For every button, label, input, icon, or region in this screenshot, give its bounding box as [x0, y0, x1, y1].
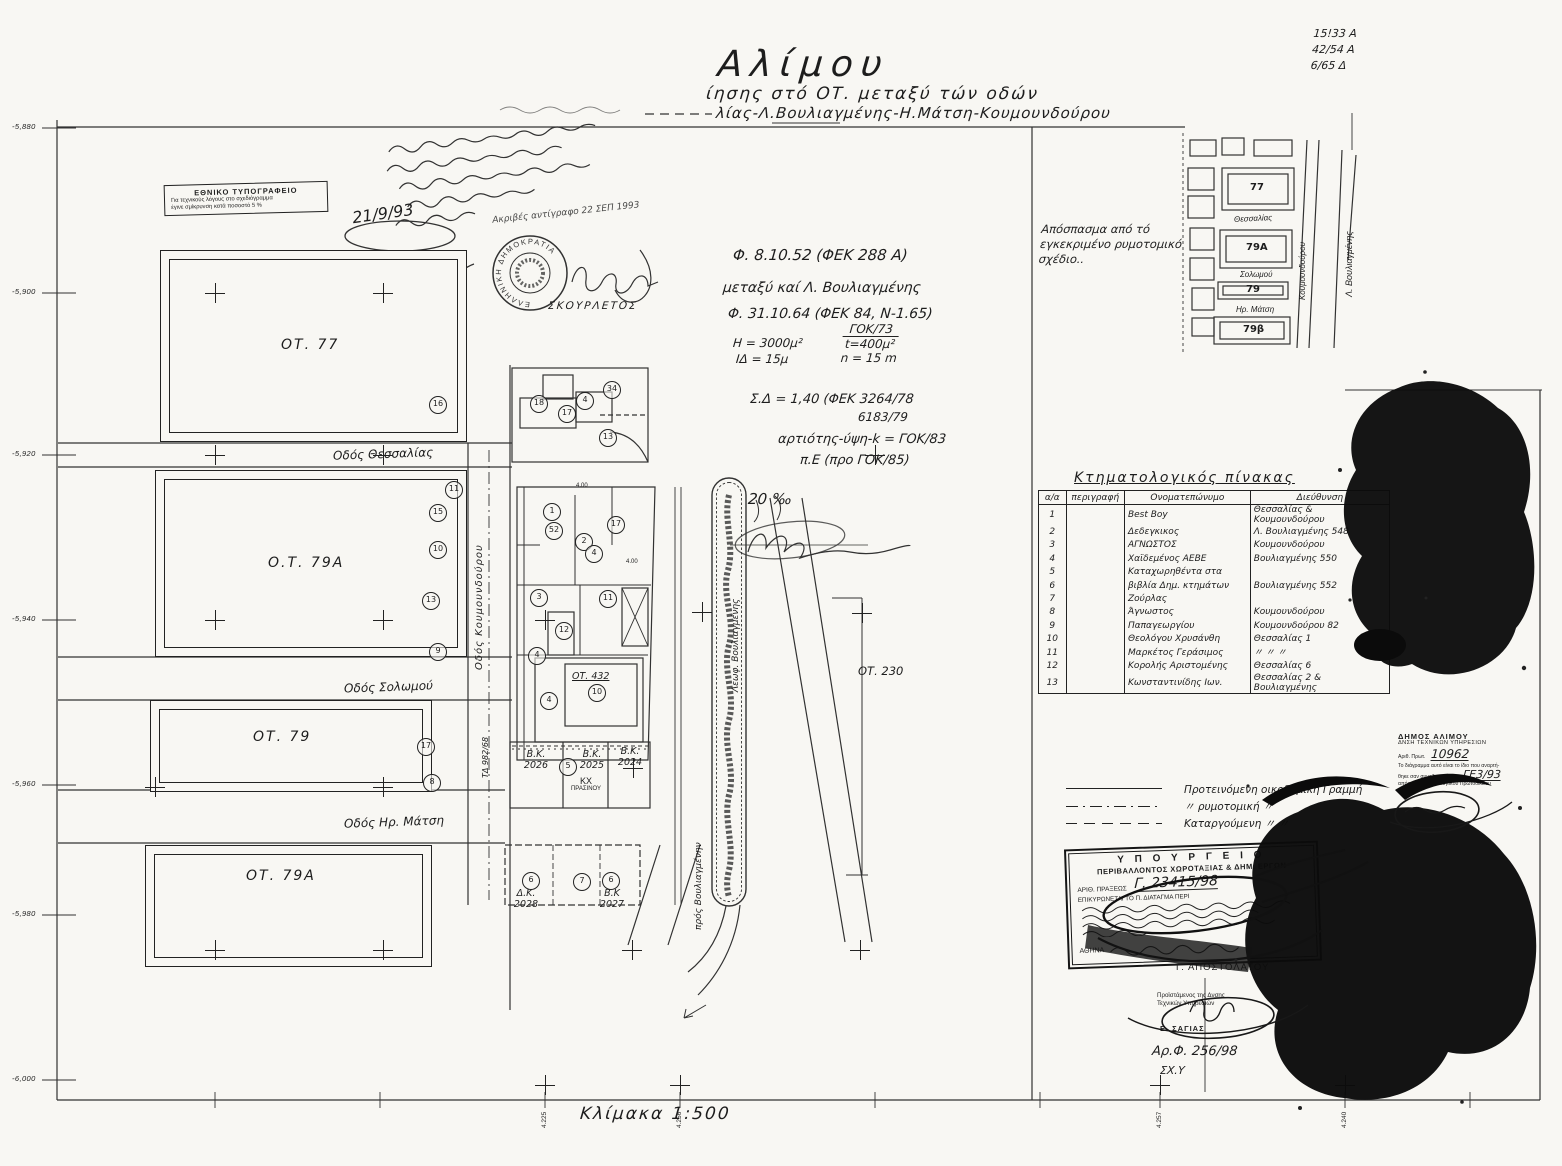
kx-green-label: ΚΧ ΠΡΑΣΙΝΟΥ [568, 776, 604, 792]
table-row: 10 Θεολόγου Χρυσάνθη Θεσσαλίας 1 [1039, 633, 1390, 646]
slant-small [628, 845, 700, 945]
signature-name-sagias: Ε. ΣΑΓΙΑΣ [1160, 1024, 1205, 1033]
inset-street-solomou: Σολωμού [1240, 270, 1273, 279]
block-ot79a-south-label: ΟΤ. 79Α [246, 868, 316, 884]
col-header-onomateponymo: Ονοματεπώνυμο [1124, 491, 1250, 505]
parcel-bk2025-num: 2025 [572, 760, 612, 771]
table-row: 2 Δεδεγκικος Λ. Βουλιαγμένης 548 [1039, 525, 1390, 538]
ministry-handwriting [1078, 896, 1307, 938]
cell-owner: Ζούρλας [1124, 592, 1250, 605]
reference-numbers: 15!33 Α42/54 Α6/65 Δ [1310, 26, 1358, 74]
table-row: 6 βιβλία Δημ. κτημάτων Βουλιαγμένης 552 [1039, 579, 1390, 592]
cadastral-table: α/α περιγραφή Ονοματεπώνυμο Διεύθυνση 1 … [1038, 490, 1390, 694]
inset-caption-line1: Απόσπασμα από τό [1041, 222, 1184, 237]
table-row: 5 Καταχωρηθέντα στα [1039, 566, 1390, 579]
block-ot79a: Ο.Τ. 79Α [155, 470, 467, 657]
page-subtitle1: ίησης στό ΟΤ. μεταξύ τών οδών [705, 84, 1040, 104]
grid-crosshair [373, 777, 393, 797]
cell-description [1066, 566, 1124, 579]
table-row: 8 Άγνωστος Κουμουνδούρου [1039, 606, 1390, 619]
table-row: 12 Κορολής Αριστομένης Θεσσαλίας 6 [1039, 659, 1390, 672]
cell-description [1066, 619, 1124, 632]
cell-description [1066, 539, 1124, 552]
cluster-top [512, 368, 648, 462]
legend-item-building-line: Προτεινόμενη οικοδομική Γραμμή [1066, 781, 1362, 798]
hatch-box [622, 588, 648, 646]
praxis-number: Γ. 23415/98 [1134, 875, 1218, 892]
parcel-number-marker: 16 [429, 396, 447, 414]
cell-description [1066, 646, 1124, 659]
cell-description [1066, 633, 1124, 646]
margin-coordinate: -5,900 [12, 287, 36, 296]
margin-coordinate: -5,980 [12, 909, 36, 918]
zoning-note-line: αρτιότης-ύψη-k = ΓΟΚ/83 [777, 432, 946, 447]
table-row: 3 ΑΓΝΩΣΤΟΣ Κουμουνδούρου [1039, 539, 1390, 552]
parcel-number-marker: 3 [530, 589, 548, 607]
grid-crosshair [205, 940, 225, 960]
cell-owner: Κορολής Αριστομένης [1124, 659, 1250, 672]
grid-crosshair [205, 610, 225, 630]
cell-number: 8 [1039, 606, 1067, 619]
grid-crosshair [373, 283, 393, 303]
cell-description [1066, 673, 1124, 694]
parcel-number-marker: 34 [603, 381, 621, 399]
street-solomou-label: Οδός Σολωμού [344, 678, 433, 695]
cell-owner: ΑΓΝΩΣΤΟΣ [1124, 539, 1250, 552]
grid-crosshair [852, 603, 872, 623]
grid-crosshair [1335, 1075, 1355, 1095]
dashdot-line-sample [1066, 806, 1162, 808]
reference-number: 6/65 Δ [1310, 58, 1355, 74]
inset-block-79a: 79Α [1246, 242, 1268, 253]
cell-number: 3 [1039, 539, 1067, 552]
dim-label-2: 4.00 [626, 559, 638, 565]
cell-address: Θεσσαλίας & Κουμουνδούρου [1250, 505, 1389, 526]
inset-street-thessalias: Θεσσαλίας [1234, 213, 1273, 224]
zoning-note-line: Φ. 8.10.52 (ΦΕΚ 288 Α) [732, 246, 908, 264]
seal-signature-flourish [615, 250, 651, 302]
parcel-number-marker: 5 [559, 758, 577, 776]
ministry-city-row: ΑΘΗΝΑ [1079, 936, 1309, 958]
cell-number: 2 [1039, 525, 1067, 538]
ot432-label: ΟΤ. 432 [572, 671, 609, 682]
signature-name-apostolatou: Γ. ΑΠΟΣΤΟΛΑΤΟΥ [1176, 962, 1269, 973]
grid-crosshair [373, 445, 393, 465]
parcel-number-marker: 12 [555, 622, 573, 640]
seal-signature [572, 267, 658, 293]
flow-note: 20 ‰ [747, 490, 793, 508]
inset-caption-line3: σχέδιο.. [1038, 252, 1181, 267]
margin-coordinate: -5,960 [12, 779, 36, 788]
ruler-label: 4.240 [1341, 1112, 1348, 1128]
file-reference: Αρ.Φ. 256/98 [1151, 1044, 1238, 1059]
parcel-dk2028-type: Δ.Κ. [506, 888, 546, 899]
signature-role-line1: Προϊστάμενος της Δνσης [1157, 992, 1225, 1000]
inset-block-79b: 79β [1243, 324, 1264, 335]
ot230-label: ΟΤ. 230 [858, 664, 903, 678]
seal-official-name: ΣΚΟΥΡΛΕΤΟΣ [547, 300, 638, 312]
grid-crosshair [145, 777, 165, 797]
title-overstrike [500, 107, 620, 113]
municipality-line4-row: θηκε σαν συνοδευτικό της ΓΕ3/93 [1398, 770, 1552, 781]
fraction-top: ΓΟΚ/73 [843, 322, 900, 337]
parcel-number-marker: 52 [545, 522, 563, 540]
decision-reference: ΓΕ3/93 [1462, 770, 1501, 781]
table-row: 11 Μαρκέτος Γεράσιμος 〃 〃 〃 [1039, 646, 1390, 659]
cell-owner: βιβλία Δημ. κτημάτων [1124, 579, 1250, 592]
ruler-ticks [215, 1092, 1470, 1108]
parcel-dk2028: Δ.Κ. 2028 [506, 888, 546, 910]
inset-street-koumoundourou: Κουμουνδούρου [1298, 190, 1307, 300]
grid-crosshair [622, 940, 642, 960]
parcel-number-marker: 13 [599, 429, 617, 447]
koumoundourou-edges [468, 365, 510, 1010]
parcel-number-marker: 6 [522, 872, 540, 890]
cell-owner: Καταχωρηθέντα στα [1124, 566, 1250, 579]
cell-address: Κουμουνδούρου 82 [1250, 619, 1389, 632]
cadastral-table-section: Κτηματολογικός πίνακας α/α περιγραφή Ονο… [1038, 470, 1392, 694]
col-header-diefthynsi: Διεύθυνση [1250, 491, 1389, 505]
parcel-number-marker: 17 [417, 738, 435, 756]
cell-description [1066, 659, 1124, 672]
ministry-city-label: ΑΘΗΝΑ [1079, 947, 1104, 955]
reference-number: 15!33 Α [1313, 26, 1358, 42]
margin-coordinate: -5,880 [12, 122, 36, 131]
signature-role-line2: Τεχνικών Υπηρεσιών [1157, 1000, 1225, 1008]
margin-coordinate: -5,920 [12, 449, 36, 458]
cell-address [1250, 592, 1389, 605]
legend: Προτεινόμενη οικοδομική Γραμμή 〃 ρυμοτομ… [1066, 781, 1362, 832]
cell-number: 11 [1039, 646, 1067, 659]
greek-republic-seal: ΕΛΛΗΝΙΚΗ ΔΗΜΟΚΡΑΤΙΑ [493, 236, 567, 310]
grid-crosshair [535, 1075, 555, 1095]
cell-number: 9 [1039, 619, 1067, 632]
parcel-number-marker: 11 [599, 590, 617, 608]
zoning-note-line: π.Ε (προ ΓΟΚ/85) [799, 453, 910, 468]
solid-line-sample [1066, 788, 1162, 791]
ruler-label: 4.225 [541, 1112, 548, 1128]
block-ot77-label: ΟΤ. 77 [281, 337, 339, 353]
cell-description [1066, 525, 1124, 538]
ot230-boundary [832, 598, 868, 875]
inset-linework [1183, 133, 1356, 352]
municipality-subtitle: ΔΝΣΗ ΤΕΧΝΙΚΩΝ ΥΠΗΡΕΣΙΩΝ [1398, 740, 1552, 747]
parcel-number-marker: 1 [543, 503, 561, 521]
parcel-number-marker: 18 [530, 395, 548, 413]
municipality-stamp: ΔΗΜΟΣ ΑΛΙΜΟΥ ΔΝΣΗ ΤΕΧΝΙΚΩΝ ΥΠΗΡΕΣΙΩΝ Αρι… [1398, 733, 1552, 795]
legend-label-2: 〃 ρυμοτομική 〃 [1184, 799, 1273, 814]
municipality-line4: θηκε σαν συνοδευτικό της [1398, 774, 1457, 780]
cell-owner: Κωνσταντινίδης Ιων. [1124, 673, 1250, 694]
parcel-number-marker: 11 [445, 481, 463, 499]
cell-number: 7 [1039, 592, 1067, 605]
cell-owner: Χαϊδεμένος ΑΕΒΕ [1124, 552, 1250, 565]
parcel-number-marker: 4 [585, 545, 603, 563]
block-ot77: ΟΤ. 77 [160, 250, 467, 442]
zoning-note-line: Η = 3000μ² [732, 336, 803, 350]
legend-label-3: Καταργούμενη 〃 〃 [1184, 816, 1289, 831]
copy-note: Ακριβές αντίγραφο 22 ΣΕΠ 1993 [492, 200, 640, 225]
protocol-label: Αριθ. Πρωτ. [1398, 754, 1426, 761]
cell-description [1066, 606, 1124, 619]
cell-description [1066, 579, 1124, 592]
praxis-label: ΑΡΙΘ. ΠΡΑΞΕΩΣ [1077, 885, 1127, 894]
fraction-bot: n = 15 m [840, 351, 897, 365]
cell-owner: Παπαγεωργίου [1124, 619, 1250, 632]
municipality-line6: Αθήνα [1398, 788, 1552, 795]
parcel-dk2028-num: 2028 [506, 899, 546, 910]
parcel-bk2026-num: 2026 [516, 760, 556, 771]
cell-owner: Θεολόγου Χρυσάνθη [1124, 633, 1250, 646]
median-left-lines [675, 487, 681, 905]
printing-office-stamp: ΕΘΝΙΚΟ ΤΥΠΟΓΡΑΦΕΙΟ Για τεχνικούς λόγους … [164, 181, 329, 216]
cell-address: Θεσσαλίας 1 [1250, 633, 1389, 646]
file-reference-2: ΣΧ.Υ [1159, 1064, 1185, 1077]
svg-text:ΕΛΛΗΝΙΚΗ ΔΗΜΟΚΡΑΤΙΑ: ΕΛΛΗΝΙΚΗ ΔΗΜΟΚΡΑΤΙΑ [494, 237, 558, 309]
cadastral-header-row: α/α περιγραφή Ονοματεπώνυμο Διεύθυνση [1039, 491, 1390, 505]
inset-street-vouliagmenis: Λ. Βουλιαγμένης [1344, 182, 1354, 297]
avenue-slants [770, 498, 872, 942]
cadastral-table-body: 1 Best Boy Θεσσαλίας & Κουμουνδούρου 2 Δ… [1039, 505, 1390, 693]
table-row: 9 Παπαγεωργίου Κουμουνδούρου 82 [1039, 619, 1390, 632]
parcel-number-marker: 13 [422, 592, 440, 610]
parcel-number-marker: 10 [429, 541, 447, 559]
cell-address: Βουλιαγμένης 552 [1250, 579, 1389, 592]
table-row: 4 Χαϊδεμένος ΑΕΒΕ Βουλιαγμένης 550 [1039, 552, 1390, 565]
grid-crosshair [850, 940, 870, 960]
parcel-number-marker: 7 [573, 873, 591, 891]
grid-crosshair [373, 940, 393, 960]
cell-description [1066, 592, 1124, 605]
cell-address: Κουμουνδούρου [1250, 539, 1389, 552]
hatch-x [622, 588, 648, 646]
street-koumoundourou-label: Οδός Κουμουνδούρου [474, 505, 485, 670]
grid-crosshair [535, 610, 555, 630]
dim-label-1: 4.00 [576, 483, 588, 489]
seal-ring-text: ΕΛΛΗΝΙΚΗ ΔΗΜΟΚΡΑΤΙΑ [494, 237, 558, 309]
cell-address: Λ. Βουλιαγμένης 548 [1250, 525, 1389, 538]
parcel-bk2025: Β.Κ. 2025 [572, 749, 612, 771]
legend-item-street-line: 〃 ρυμοτομική 〃 [1066, 798, 1362, 815]
page-subtitle2: λίας-Λ.Βουλιαγμένης-Η.Μάτση-Κουμουνδούρο… [715, 104, 1111, 122]
col-header-aa: α/α [1039, 491, 1067, 505]
parcel-number-marker: 17 [607, 516, 625, 534]
table-row: 7 Ζούρλας [1039, 592, 1390, 605]
parcel-bk2024-type: Β.Κ. [612, 746, 648, 757]
cell-address: Κουμουνδούρου [1250, 606, 1389, 619]
fraction-mid: t=400μ² [841, 337, 898, 351]
cell-description [1066, 552, 1124, 565]
legend-label-1: Προτεινόμενη οικοδομική Γραμμή [1184, 784, 1362, 796]
grid-crosshair [1150, 1075, 1170, 1095]
margin-ticks [42, 128, 76, 1080]
col-header-perigrafi: περιγραφή [1066, 491, 1124, 505]
margin-coordinate: -5,940 [12, 614, 36, 623]
parcel-number-marker: 6 [602, 872, 620, 890]
cell-address: Θεσσαλίας 6 [1250, 659, 1389, 672]
grid-crosshair [670, 1075, 690, 1095]
avenue-vouliagmenis-label: Λεωφ. Βουλιαγμένης [731, 552, 741, 692]
grid-crosshair [692, 602, 712, 622]
protocol-number: 10962 [1430, 749, 1469, 761]
cell-owner: Άγνωστος [1124, 606, 1250, 619]
cell-number: 5 [1039, 566, 1067, 579]
cell-owner: Μαρκέτος Γεράσιμος [1124, 646, 1250, 659]
cell-number: 4 [1039, 552, 1067, 565]
parcel-bk2026: Β.Κ. 2026 [516, 749, 556, 771]
zoning-note-line: μεταξύ καί Λ. Βουλιαγμένης [722, 280, 921, 296]
grid-crosshair [865, 445, 885, 465]
signature-role: Προϊστάμενος της Δνσης Τεχνικών Υπηρεσιώ… [1157, 992, 1225, 1008]
cell-address: 〃 〃 〃 [1250, 646, 1389, 659]
prasinou-label: ΠΡΑΣΙΝΟΥ [568, 786, 604, 792]
scale-label: Κλίμακα 1:500 [579, 1104, 731, 1124]
frame-aux [1345, 113, 1542, 390]
scanned-plan-sheet: ΕΛΛΗΝΙΚΗ ΔΗΜΟΚΡΑΤΙΑ Αλίμου ίησης στό ΟΤ. [0, 0, 1562, 1166]
parcel-number-marker: 4 [576, 392, 594, 410]
parcel-number-marker: 4 [540, 692, 558, 710]
inset-block-79: 79 [1246, 284, 1260, 295]
zoning-note-line: Φ. 31.10.64 (ΦΕΚ 84, Ν-1.65) [727, 306, 933, 322]
parcel-number-marker: 9 [429, 643, 447, 661]
parcel-number-marker: 15 [429, 504, 447, 522]
zoning-note-line: Σ.Δ = 1,40 (ΦΕΚ 3264/78 [749, 392, 914, 407]
inset-caption: Απόσπασμα από τό εγκεκριμένο ρυμοτομικό … [1038, 222, 1184, 267]
grid-crosshair [623, 758, 643, 778]
inset-street-matsi: Ηρ. Μάτση [1236, 305, 1274, 314]
cell-number: 10 [1039, 633, 1067, 646]
cadastral-table-title: Κτηματολογικός πίνακας [1074, 470, 1392, 486]
cell-number: 1 [1039, 505, 1067, 526]
ruler-label: 4.257 [1156, 1112, 1163, 1128]
zoning-note-line: ΙΔ = 15μ [735, 352, 789, 366]
municipality-line5: απόφασης του Διοικητικού Πρωτοδικείου [1398, 781, 1552, 788]
td-ref-label: ΤΔ 982/68 [481, 698, 490, 778]
grid-crosshair [205, 445, 225, 465]
parcel-number-marker: 10 [588, 684, 606, 702]
inset-block-77: 77 [1250, 182, 1264, 193]
cell-address: Θεσσαλίας 2 & Βουλιαγμένης [1250, 673, 1389, 694]
pros-vouliagmenin-label: πρός Βουλιαγμένην [694, 840, 704, 930]
cluster-top-a [543, 375, 573, 399]
pros-arrow [684, 1005, 706, 1018]
reference-number: 42/54 Α [1311, 42, 1356, 58]
parcel-bk2027: Β.Κ 2027 [592, 888, 632, 910]
kx-label: ΚΧ [568, 776, 604, 786]
parcel-bk2025-type: Β.Κ. [572, 749, 612, 760]
municipality-scrawl [1390, 788, 1512, 835]
dashed-line-sample [1066, 823, 1162, 825]
street-matsi-label: Οδός Ηρ. Μάτση [344, 813, 444, 830]
municipality-title: ΔΗΜΟΣ ΑΛΙΜΟΥ [1398, 733, 1552, 740]
cell-address: Βουλιαγμένης 550 [1250, 552, 1389, 565]
cell-description [1066, 505, 1124, 526]
zoning-note-line: 6183/79 [857, 410, 908, 424]
cell-owner: Best Boy [1124, 505, 1250, 526]
page-title: Αλίμου [716, 44, 891, 85]
table-row: 13 Κωνσταντινίδης Ιων. Θεσσαλίας 2 & Βου… [1039, 673, 1390, 694]
parcel-bk2026-type: Β.Κ. [516, 749, 556, 760]
parcel-number-marker: 8 [423, 774, 441, 792]
zoning-fraction: ΓΟΚ/73 t=400μ² n = 15 m [840, 322, 900, 365]
handwritten-date: 21/9/93 [351, 200, 415, 227]
cell-number: 12 [1039, 659, 1067, 672]
ministry-date-scrawl [1104, 938, 1254, 957]
median-strip-outer [712, 478, 746, 906]
margin-coordinate: -6,000 [12, 1074, 36, 1083]
cell-address [1250, 566, 1389, 579]
legend-item-abolished-line: Καταργούμενη 〃 〃 [1066, 815, 1362, 832]
block-ot79a-label: Ο.Τ. 79Α [268, 555, 344, 571]
grid-crosshair [205, 283, 225, 303]
table-row: 1 Best Boy Θεσσαλίας & Κουμουνδούρου [1039, 505, 1390, 526]
ministry-stamp: Υ Π Ο Υ Ρ Γ Ε Ι Ο ΠΕΡΙΒΑΛΛΟΝΤΟΣ ΧΩΡΟΤΑΞΙ… [1064, 841, 1322, 970]
protocol-row: Αριθ. Πρωτ. 10962 [1398, 749, 1552, 761]
parcel-number-marker: 17 [558, 405, 576, 423]
inset-caption-line2: εγκεκριμένο ρυμοτομικό [1039, 237, 1182, 252]
cell-number: 13 [1039, 673, 1067, 694]
parcel-bk2027-num: 2027 [592, 899, 632, 910]
cell-number: 6 [1039, 579, 1067, 592]
grid-crosshair [373, 610, 393, 630]
median-strip-inner [717, 483, 742, 902]
block-ot79-label: ΟΤ. 79 [253, 729, 311, 745]
parcel-number-marker: 4 [528, 647, 546, 665]
cell-owner: Δεδεγκικος [1124, 525, 1250, 538]
